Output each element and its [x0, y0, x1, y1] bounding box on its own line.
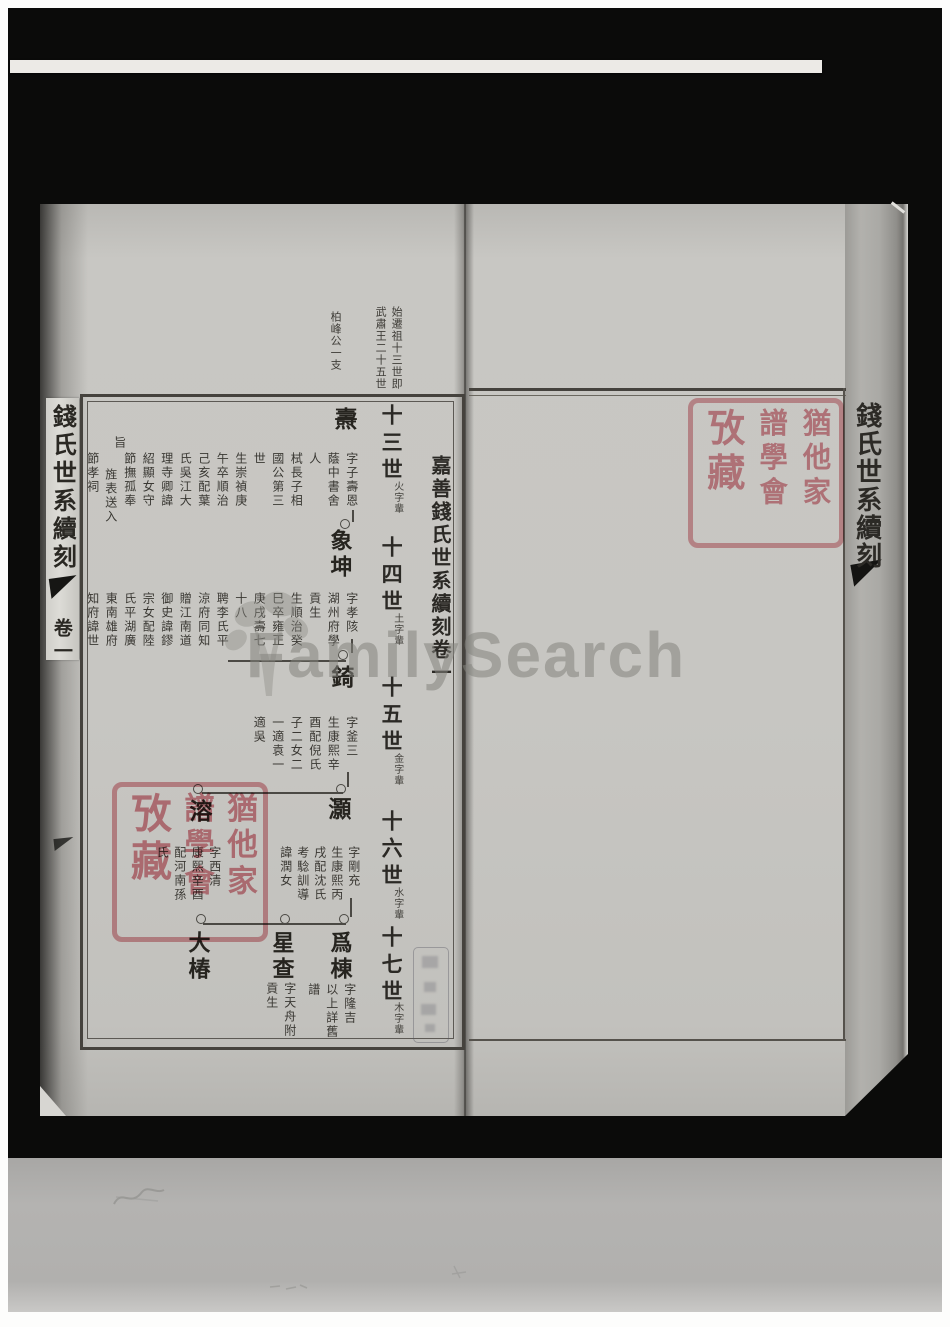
tree-line [350, 898, 352, 917]
bio-column: 國公第三 [271, 452, 284, 508]
tree-node-circle [340, 519, 350, 529]
bio-column: 人 [308, 452, 321, 466]
scanned-genealogy-page: 錢氏世系續刻 卷一 錢氏世系續刻 始遷祖十三世即 武肅王二十五世 柏峰公一支 嘉… [0, 0, 950, 1327]
generation-note: 木字輩 [392, 1002, 403, 1035]
bio-column: 紹顯女守 [141, 452, 154, 508]
ancestor-name: 燾 [330, 407, 355, 434]
small-marks [266, 1278, 310, 1294]
bio-column: 己亥配葉 [197, 452, 210, 508]
bio-column: 生康熙辛 [326, 716, 339, 772]
tree-node-circle [336, 784, 346, 794]
generation-label: 十四世 [379, 536, 402, 617]
bio-column: 節孝祠 [86, 452, 99, 494]
tree-line [203, 923, 346, 925]
bio-column: 子二女二 [289, 716, 302, 772]
bio-column: 諱潤女 [279, 846, 292, 888]
bio-column: 午卒順治 [215, 452, 228, 508]
bio-column: 適吳 [252, 716, 265, 744]
edge-title: 錢氏世系續刻 [852, 402, 881, 570]
bio-column: 節撫孤奉 [123, 452, 136, 508]
small-mark-2 [448, 1262, 474, 1284]
generation-note: 火字輩 [392, 481, 403, 514]
generation-note: 水字輩 [392, 887, 403, 920]
bio-column: 御史諱鏐 [160, 592, 173, 648]
paper-corner-bottom-left [40, 1086, 66, 1116]
bio-column: 氏平湖廣 [123, 592, 136, 648]
tree-line [352, 510, 354, 522]
tree-node-circle [339, 914, 349, 924]
bio-column: 生康熙丙 [330, 846, 343, 902]
bio-column: 字西清 [208, 846, 221, 888]
bio-column: 旌表送入 [104, 468, 117, 524]
pencil-scribble [108, 1182, 172, 1214]
faint-stamp [413, 947, 449, 1043]
generation-label: 十六世 [379, 810, 402, 891]
bio-column: 宗女配陸 [141, 592, 154, 648]
bio-column: 一適袁一 [271, 716, 284, 772]
bio-column: 蔭中書舍 [326, 452, 339, 508]
bio-column: 以上詳舊 [325, 983, 338, 1039]
bio-column: 字天舟附 [283, 982, 296, 1038]
ancestor-name: 溶 [185, 799, 210, 826]
bio-column: 戌配沈氏 [313, 846, 326, 902]
tree-node-circle [280, 914, 290, 924]
margin-note-column: 始遷祖十三世即 [390, 306, 402, 390]
generation-label: 十三世 [379, 404, 402, 485]
spine-volume: 卷一 [51, 618, 72, 664]
ancestor-name: 灝 [324, 797, 349, 824]
bio-column: 字釜三 [345, 716, 358, 758]
ancestor-name: 象坤 [326, 529, 350, 581]
bio-column: 康熙辛酉 [190, 846, 203, 902]
bio-column: 生崇禎庚 [234, 452, 247, 508]
previous-page-edge [10, 60, 822, 73]
bio-column: 贈江南道 [178, 592, 191, 648]
margin-note-column: 武肅王二十五世 [374, 306, 386, 390]
bio-column: 酉配倪氏 [308, 716, 321, 772]
familysearch-watermark: FamilySearch [246, 618, 686, 692]
tree-node-circle [193, 784, 203, 794]
bio-column: 字子壽恩 [345, 452, 358, 508]
bio-column: 氏 [155, 846, 168, 860]
generation-label: 十七世 [379, 926, 402, 1007]
generation-note: 金字輩 [392, 753, 403, 786]
bio-column: 東南雄府 [104, 592, 117, 648]
ancestor-name: 爲棟 [326, 931, 350, 983]
bio-column: 氏吳江大 [178, 452, 191, 508]
spine-fold-wedge [49, 575, 80, 599]
bio-column: 貢生 [265, 982, 278, 1010]
bio-column: 譜 [307, 983, 320, 997]
spine-fold-wedge-small [53, 837, 74, 851]
bio-column: 字剛充 [347, 846, 360, 888]
ancestor-name: 星查 [268, 931, 292, 983]
right-page-top-rule [469, 388, 846, 391]
tree-node-circle [196, 914, 206, 924]
bio-column: 世 [252, 452, 265, 466]
bio-column: 考騐訓導 [296, 846, 309, 902]
bio-column: 理寺卿諱 [160, 452, 173, 508]
tree-line [347, 772, 349, 787]
bio-column: 涼府同知 [197, 592, 210, 648]
right-page-top-rule-thin [469, 395, 846, 396]
paper-corner-bottom-right [845, 1054, 908, 1116]
bio-column: 旨 [113, 436, 126, 450]
bio-column: 栻長子相 [289, 452, 302, 508]
right-page-right-rule [843, 388, 845, 1041]
page-edge-strip [845, 204, 908, 1116]
margin-note-column: 柏峰公一支 [329, 311, 341, 371]
right-page-bottom-rule [469, 1039, 846, 1041]
ancestor-name: 大椿 [184, 931, 208, 983]
bio-column: 字隆吉 [343, 983, 356, 1025]
bio-column: 知府諱世 [86, 592, 99, 648]
bio-column: 配河南孫 [173, 846, 186, 902]
spine-title: 錢氏世系續刻 [49, 404, 75, 572]
tree-line [202, 792, 343, 794]
